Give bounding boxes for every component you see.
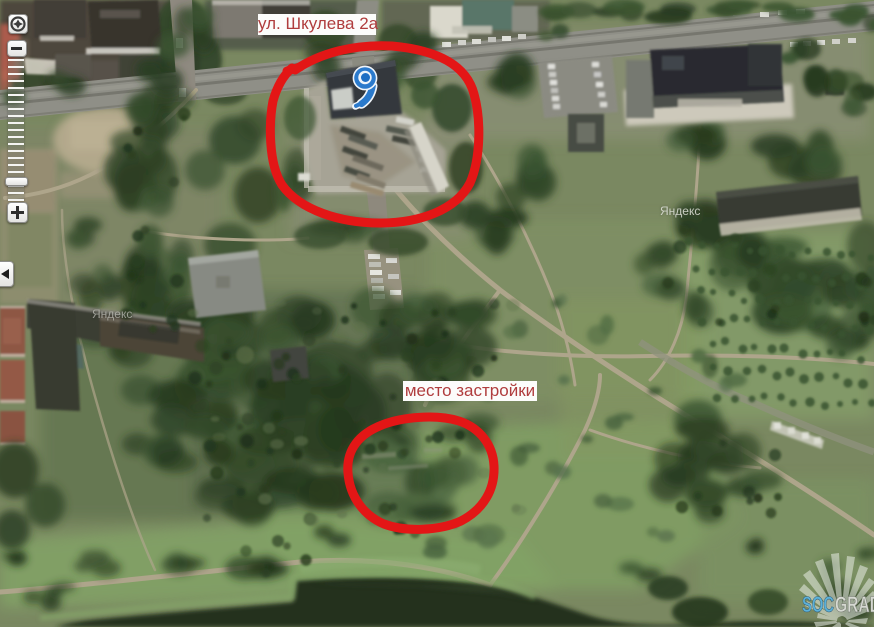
svg-text:GRAD: GRAD bbox=[835, 592, 874, 617]
svg-text:SOC: SOC bbox=[802, 592, 834, 617]
